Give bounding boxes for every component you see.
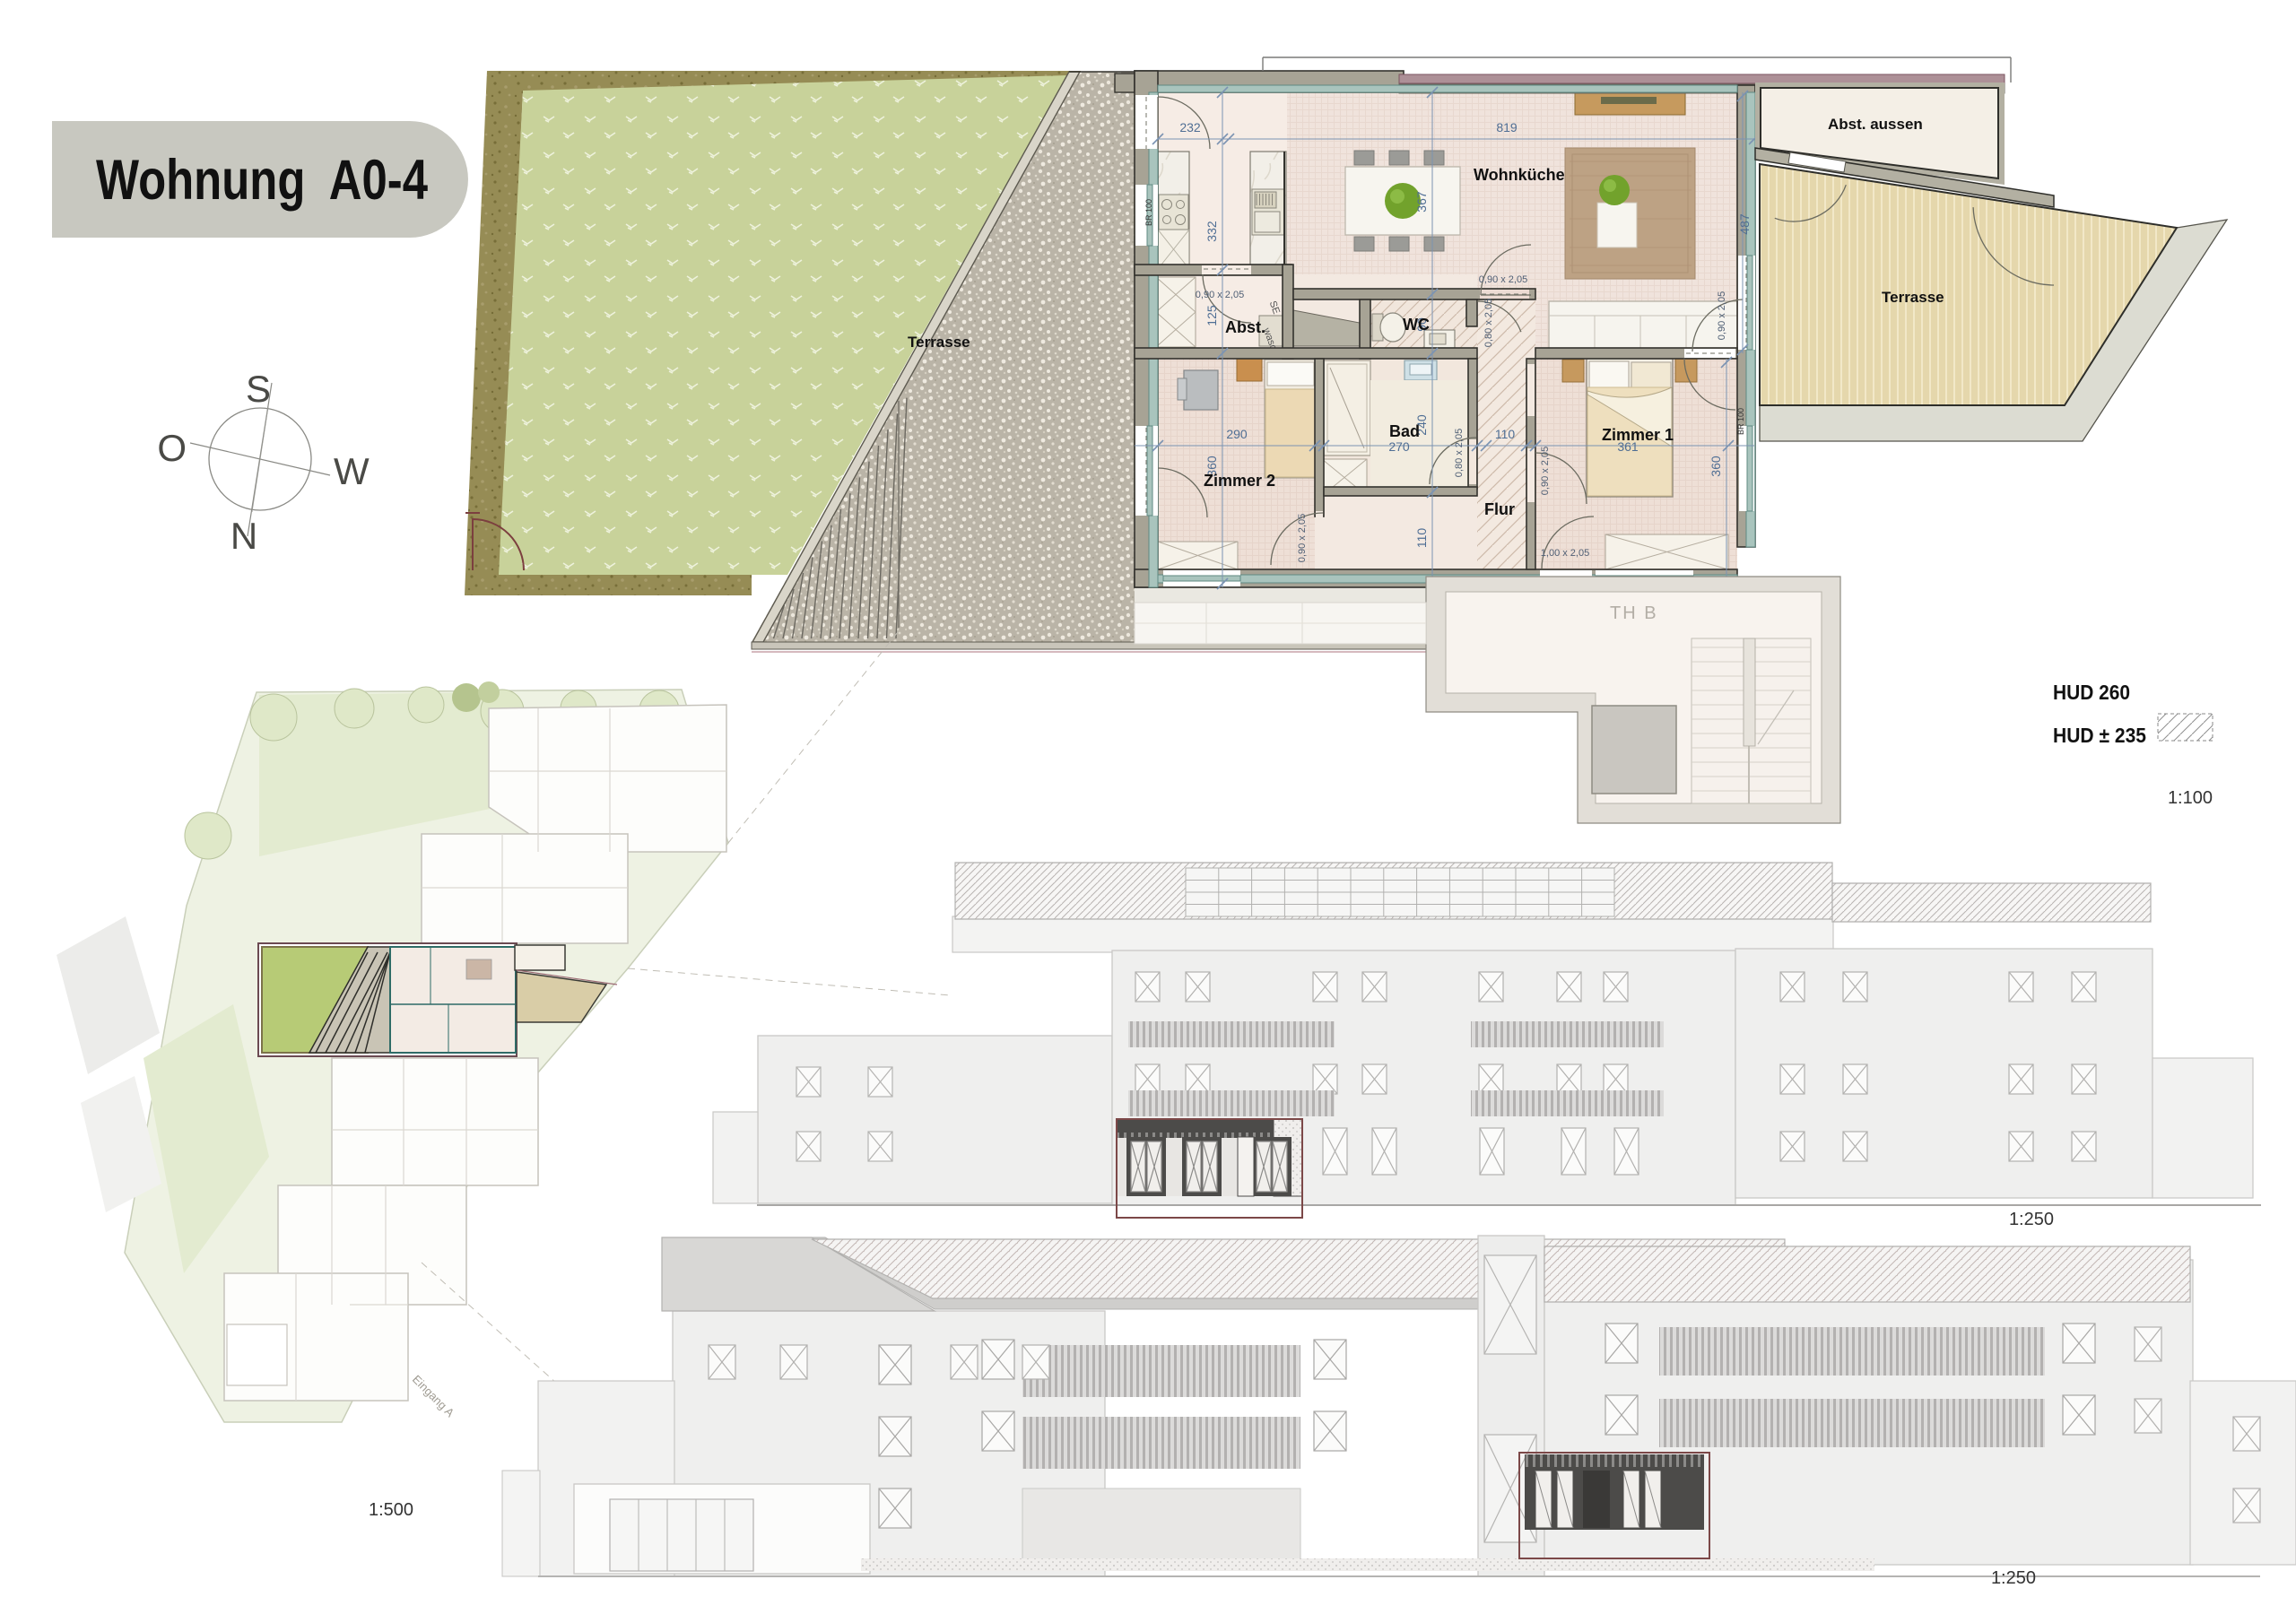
svg-text:Zimmer 1: Zimmer 1 xyxy=(1602,426,1674,444)
svg-text:110: 110 xyxy=(1495,427,1516,441)
svg-text:0,90 x 2,05: 0,90 x 2,05 xyxy=(1196,290,1244,300)
svg-text:HUD 260: HUD 260 xyxy=(2053,681,2130,704)
svg-text:BR 100: BR 100 xyxy=(1736,408,1745,435)
svg-text:Zimmer 2: Zimmer 2 xyxy=(1204,472,1275,490)
svg-text:Wohnung A0-4: Wohnung A0-4 xyxy=(96,149,428,212)
svg-text:332: 332 xyxy=(1205,221,1219,242)
svg-text:0,90 x 2,05: 0,90 x 2,05 xyxy=(1479,274,1527,285)
svg-text:0,90 x 2,05: 0,90 x 2,05 xyxy=(1717,291,1727,340)
svg-text:0,80 x 2,05: 0,80 x 2,05 xyxy=(1454,429,1465,477)
svg-text:290: 290 xyxy=(1226,427,1248,441)
svg-text:0,90 x 2,05: 0,90 x 2,05 xyxy=(1540,447,1551,495)
svg-text:TH B: TH B xyxy=(1610,603,1658,623)
svg-text:S: S xyxy=(246,368,271,410)
svg-text:Wohnküche: Wohnküche xyxy=(1474,166,1565,184)
svg-text:232: 232 xyxy=(1179,120,1201,135)
svg-text:270: 270 xyxy=(1388,439,1410,454)
svg-text:Terrasse: Terrasse xyxy=(1882,289,1944,306)
svg-text:Abst.: Abst. xyxy=(1225,318,1265,336)
svg-text:W: W xyxy=(334,450,370,492)
svg-text:1:100: 1:100 xyxy=(2168,788,2213,808)
svg-text:367: 367 xyxy=(1414,191,1429,213)
svg-text:1:250: 1:250 xyxy=(1991,1568,2036,1588)
svg-text:Terrasse: Terrasse xyxy=(908,334,970,351)
svg-text:Flur: Flur xyxy=(1484,500,1515,518)
svg-text:N: N xyxy=(230,515,257,557)
svg-text:0,80 x 2,05: 0,80 x 2,05 xyxy=(1483,299,1494,347)
svg-text:360: 360 xyxy=(1709,456,1723,477)
svg-text:WC: WC xyxy=(1403,316,1430,334)
svg-text:819: 819 xyxy=(1496,120,1518,135)
svg-text:O: O xyxy=(157,427,187,469)
svg-text:487: 487 xyxy=(1737,213,1752,235)
svg-text:125: 125 xyxy=(1205,305,1219,326)
svg-text:BR 100: BR 100 xyxy=(1144,199,1153,226)
svg-text:110: 110 xyxy=(1414,528,1429,549)
svg-text:0,90 x 2,05: 0,90 x 2,05 xyxy=(1297,514,1308,562)
svg-text:1:250: 1:250 xyxy=(2009,1210,2054,1229)
svg-text:Abst. aussen: Abst. aussen xyxy=(1828,116,1923,133)
svg-text:1,00 x 2,05: 1,00 x 2,05 xyxy=(1541,548,1589,559)
svg-text:HUD ± 235: HUD ± 235 xyxy=(2053,724,2146,747)
svg-text:1:500: 1:500 xyxy=(369,1500,413,1520)
svg-text:Bad: Bad xyxy=(1389,422,1420,440)
